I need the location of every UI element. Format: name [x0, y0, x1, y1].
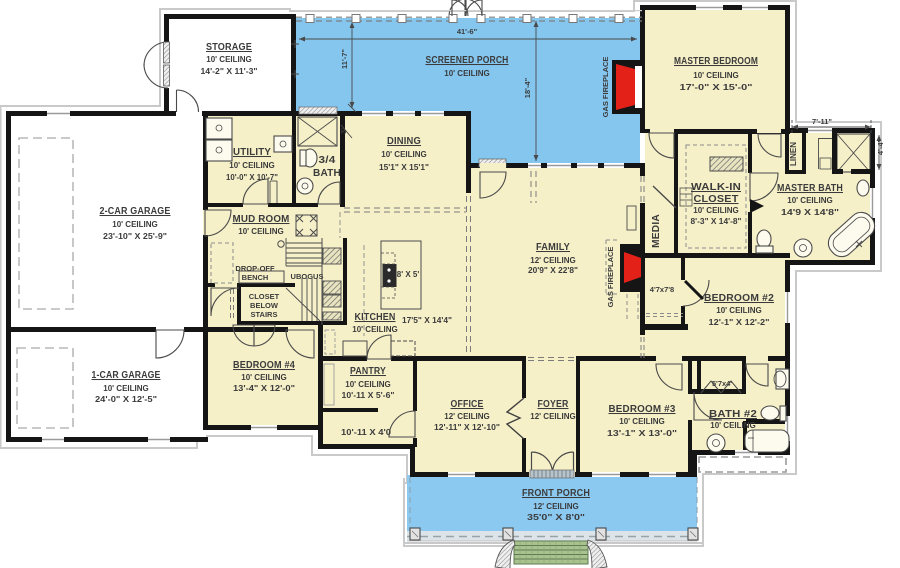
svg-text:KITCHEN: KITCHEN	[355, 312, 396, 323]
svg-text:10' CEILING: 10' CEILING	[787, 196, 832, 205]
svg-text:10' CEILING: 10' CEILING	[710, 421, 755, 430]
svg-text:14'-2" X 11'-3": 14'-2" X 11'-3"	[201, 67, 258, 76]
svg-text:14'9 X 14'8": 14'9 X 14'8"	[781, 208, 839, 217]
svg-text:MEDIA: MEDIA	[651, 214, 662, 248]
svg-text:LINEN: LINEN	[789, 142, 798, 166]
svg-text:12'-11" X 12'-10": 12'-11" X 12'-10"	[434, 423, 500, 432]
svg-text:12'-1" X 12'-2": 12'-1" X 12'-2"	[709, 318, 770, 327]
svg-text:BEDROOM #4: BEDROOM #4	[233, 360, 295, 371]
svg-text:12' CEILING: 12' CEILING	[530, 412, 575, 421]
svg-text:7'-11": 7'-11"	[812, 117, 832, 126]
svg-text:CLOSET: CLOSET	[694, 194, 740, 205]
svg-text:10' CEILING: 10' CEILING	[103, 384, 148, 393]
svg-text:GAS FIREPLACE: GAS FIREPLACE	[606, 247, 615, 308]
svg-text:4'7x7'8: 4'7x7'8	[650, 285, 674, 294]
svg-text:13'-1" X 13'-0": 13'-1" X 13'-0"	[607, 429, 677, 438]
svg-text:8'-3" X 14'-8": 8'-3" X 14'-8"	[691, 217, 742, 226]
svg-text:10' CEILING: 10' CEILING	[206, 55, 251, 64]
svg-text:12' CEILING: 12' CEILING	[530, 256, 575, 265]
svg-text:41'-6": 41'-6"	[457, 27, 478, 36]
svg-text:10' CEILING: 10' CEILING	[444, 69, 489, 78]
svg-text:3/4: 3/4	[319, 155, 336, 166]
svg-text:BATH #2: BATH #2	[709, 409, 757, 420]
svg-text:13'-4" X 12'-0": 13'-4" X 12'-0"	[233, 384, 295, 393]
svg-text:MUD ROOM: MUD ROOM	[233, 214, 290, 225]
svg-text:10'-0" X 10'-7": 10'-0" X 10'-7"	[226, 173, 278, 182]
svg-text:MASTER BATH: MASTER BATH	[777, 183, 843, 194]
svg-text:10' CEILING: 10' CEILING	[716, 306, 761, 315]
svg-text:15'1" X 15'1": 15'1" X 15'1"	[379, 163, 429, 172]
svg-text:CLOSET: CLOSET	[249, 292, 280, 301]
svg-text:12' CEILING: 12' CEILING	[444, 412, 489, 421]
svg-text:DROP-OFF: DROP-OFF	[235, 264, 275, 273]
svg-text:BEDROOM #2: BEDROOM #2	[704, 293, 774, 304]
svg-text:FOYER: FOYER	[538, 399, 569, 410]
svg-text:DINING: DINING	[387, 136, 421, 147]
svg-text:35'0" X 8'0": 35'0" X 8'0"	[527, 513, 585, 522]
svg-text:FAMILY: FAMILY	[536, 242, 570, 253]
svg-text:4'-4": 4'-4"	[876, 138, 885, 155]
svg-text:3': 3'	[339, 128, 348, 134]
svg-text:10' CEILING: 10' CEILING	[112, 220, 157, 229]
svg-text:10'-11 X 5'-6": 10'-11 X 5'-6"	[342, 391, 395, 400]
svg-text:GAS FIREPLACE: GAS FIREPLACE	[601, 57, 610, 118]
svg-text:10' CEILING: 10' CEILING	[619, 417, 664, 426]
svg-text:FRONT PORCH: FRONT PORCH	[522, 488, 590, 499]
svg-text:OFFICE: OFFICE	[451, 399, 484, 410]
svg-text:STORAGE: STORAGE	[206, 42, 252, 53]
svg-text:PANTRY: PANTRY	[350, 366, 386, 377]
svg-text:10' CEILING: 10' CEILING	[381, 150, 426, 159]
svg-text:10' CEILING: 10' CEILING	[229, 161, 274, 170]
svg-text:20'9" X 22'8": 20'9" X 22'8"	[528, 266, 578, 275]
svg-text:MASTER BEDROOM: MASTER BEDROOM	[674, 56, 758, 67]
svg-text:BELOW: BELOW	[250, 301, 279, 310]
svg-text:STAIRS: STAIRS	[251, 310, 278, 319]
svg-text:1-CAR GARAGE: 1-CAR GARAGE	[92, 370, 161, 381]
svg-text:UBOGUS: UBOGUS	[291, 272, 324, 281]
svg-text:10'-11 X 4'0: 10'-11 X 4'0	[341, 428, 392, 437]
svg-text:10' CEILING: 10' CEILING	[241, 373, 286, 382]
svg-text:23'-10" X 25'-9": 23'-10" X 25'-9"	[103, 232, 167, 241]
svg-text:BENCH: BENCH	[242, 273, 269, 282]
svg-text:SCREENED PORCH: SCREENED PORCH	[426, 55, 509, 66]
svg-text:10' CEILING: 10' CEILING	[693, 206, 738, 215]
svg-text:12' CEILING: 12' CEILING	[533, 502, 578, 511]
svg-text:10' CEILING: 10' CEILING	[693, 71, 738, 80]
svg-text:10' CEILING: 10' CEILING	[238, 227, 283, 236]
svg-text:24'-0" X 12'-5": 24'-0" X 12'-5"	[95, 395, 157, 404]
svg-text:BATH: BATH	[313, 168, 341, 179]
svg-text:18'-4": 18'-4"	[523, 77, 532, 98]
svg-text:WALK-IN: WALK-IN	[691, 182, 741, 193]
svg-text:17'5" X 14'4": 17'5" X 14'4"	[402, 316, 452, 325]
svg-text:17'-0" X 15'-0": 17'-0" X 15'-0"	[680, 83, 753, 92]
svg-text:BEDROOM #3: BEDROOM #3	[609, 404, 676, 415]
svg-text:11'-7": 11'-7"	[340, 49, 349, 69]
svg-text:5'7x4': 5'7x4'	[712, 379, 732, 388]
svg-text:8' X 5': 8' X 5'	[397, 270, 420, 279]
svg-text:10' CEILING: 10' CEILING	[345, 380, 390, 389]
svg-text:UTILITY: UTILITY	[233, 147, 271, 158]
svg-text:10' CEILING: 10' CEILING	[352, 325, 397, 334]
svg-text:2-CAR GARAGE: 2-CAR GARAGE	[100, 206, 171, 217]
